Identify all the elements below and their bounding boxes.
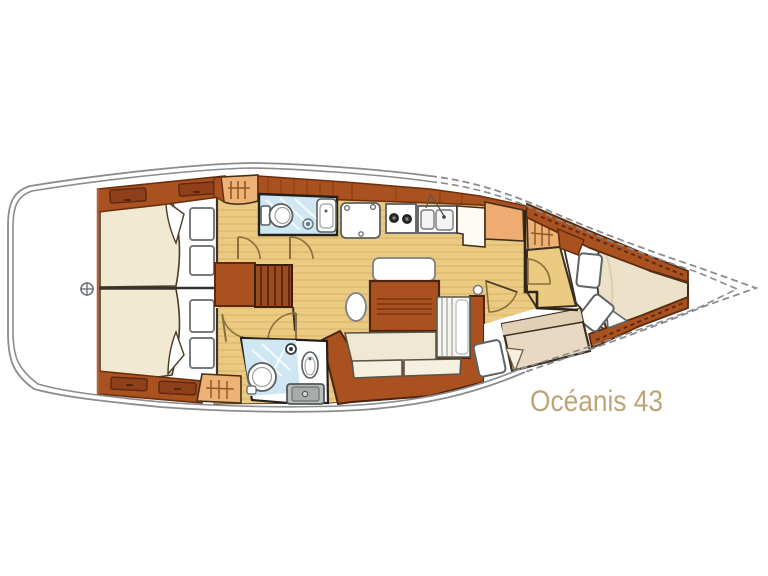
svg-text:Océanis 43: Océanis 43 — [530, 385, 663, 418]
